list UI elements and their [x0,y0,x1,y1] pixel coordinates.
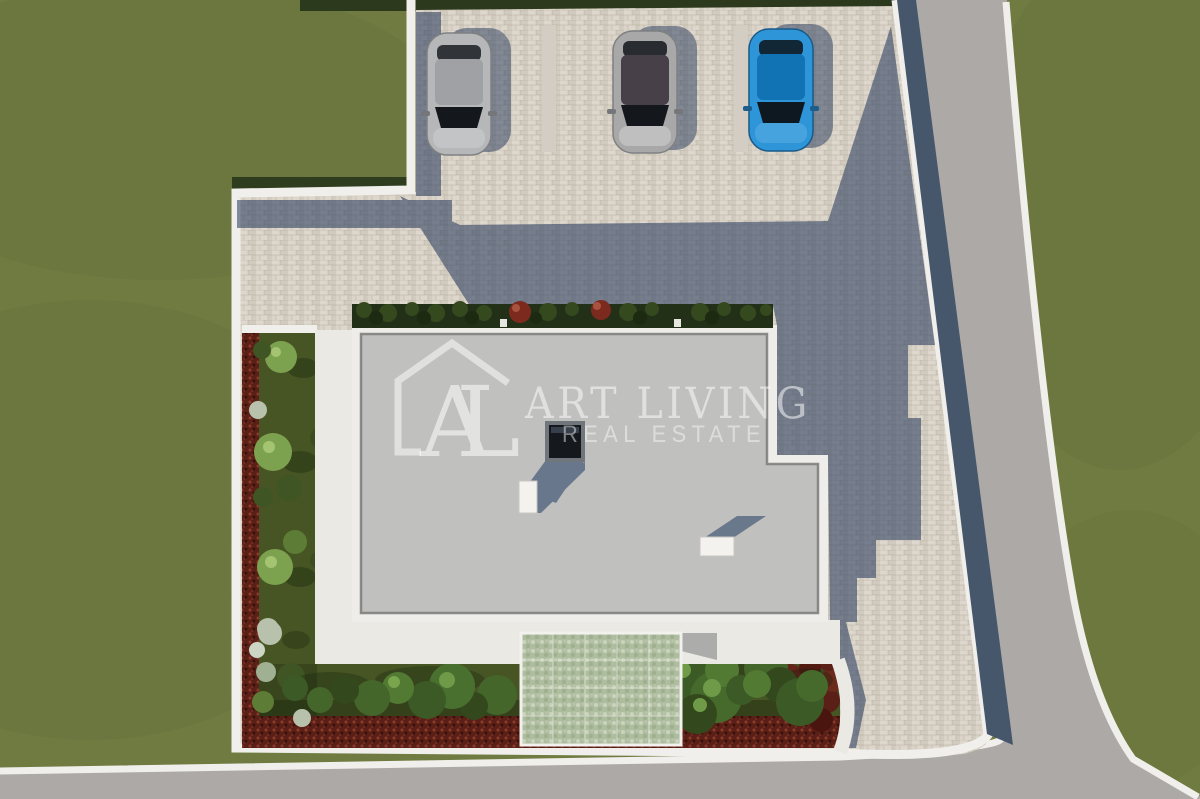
hedge-post [674,319,681,327]
car-gray [607,26,697,153]
roof-chimney [519,481,537,513]
roof-vent [700,537,734,556]
site-plan-svg: AL ART LIVING REAL ESTATE [0,0,1200,799]
aerial-property-rendering: AL ART LIVING REAL ESTATE [0,0,1200,799]
red-shrub-ball [509,301,531,323]
car-silver [421,28,511,155]
building-hedge [352,300,773,328]
parked-cars [421,24,833,155]
garden-curb-top [242,325,317,333]
car-blue [743,24,833,151]
hedge-post [500,319,507,327]
watermark-subtitle: REAL ESTATE [562,421,766,448]
wall-shadow-horizontal [237,200,452,228]
red-shrub-ball [591,300,611,320]
